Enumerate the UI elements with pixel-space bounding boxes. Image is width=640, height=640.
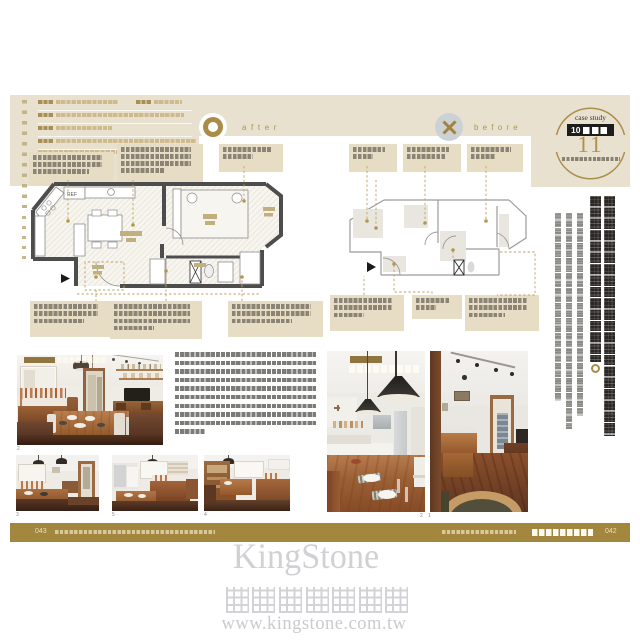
svg-text:REF: REF bbox=[67, 192, 77, 198]
